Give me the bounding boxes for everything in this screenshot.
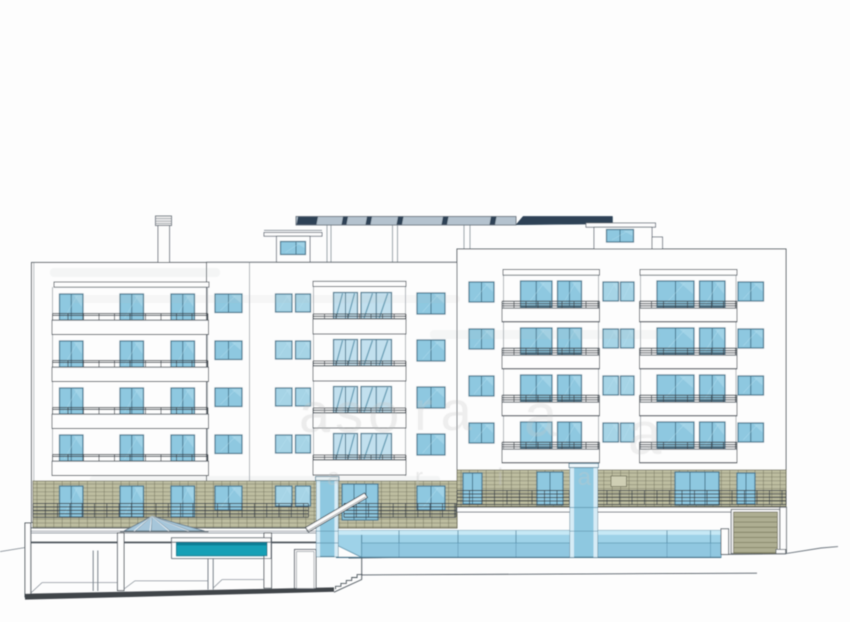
- svg-text:ra: ra: [414, 379, 480, 442]
- svg-text:a: a: [524, 382, 558, 449]
- svg-text:a: a: [628, 400, 662, 467]
- svg-text:aso: aso: [299, 381, 404, 444]
